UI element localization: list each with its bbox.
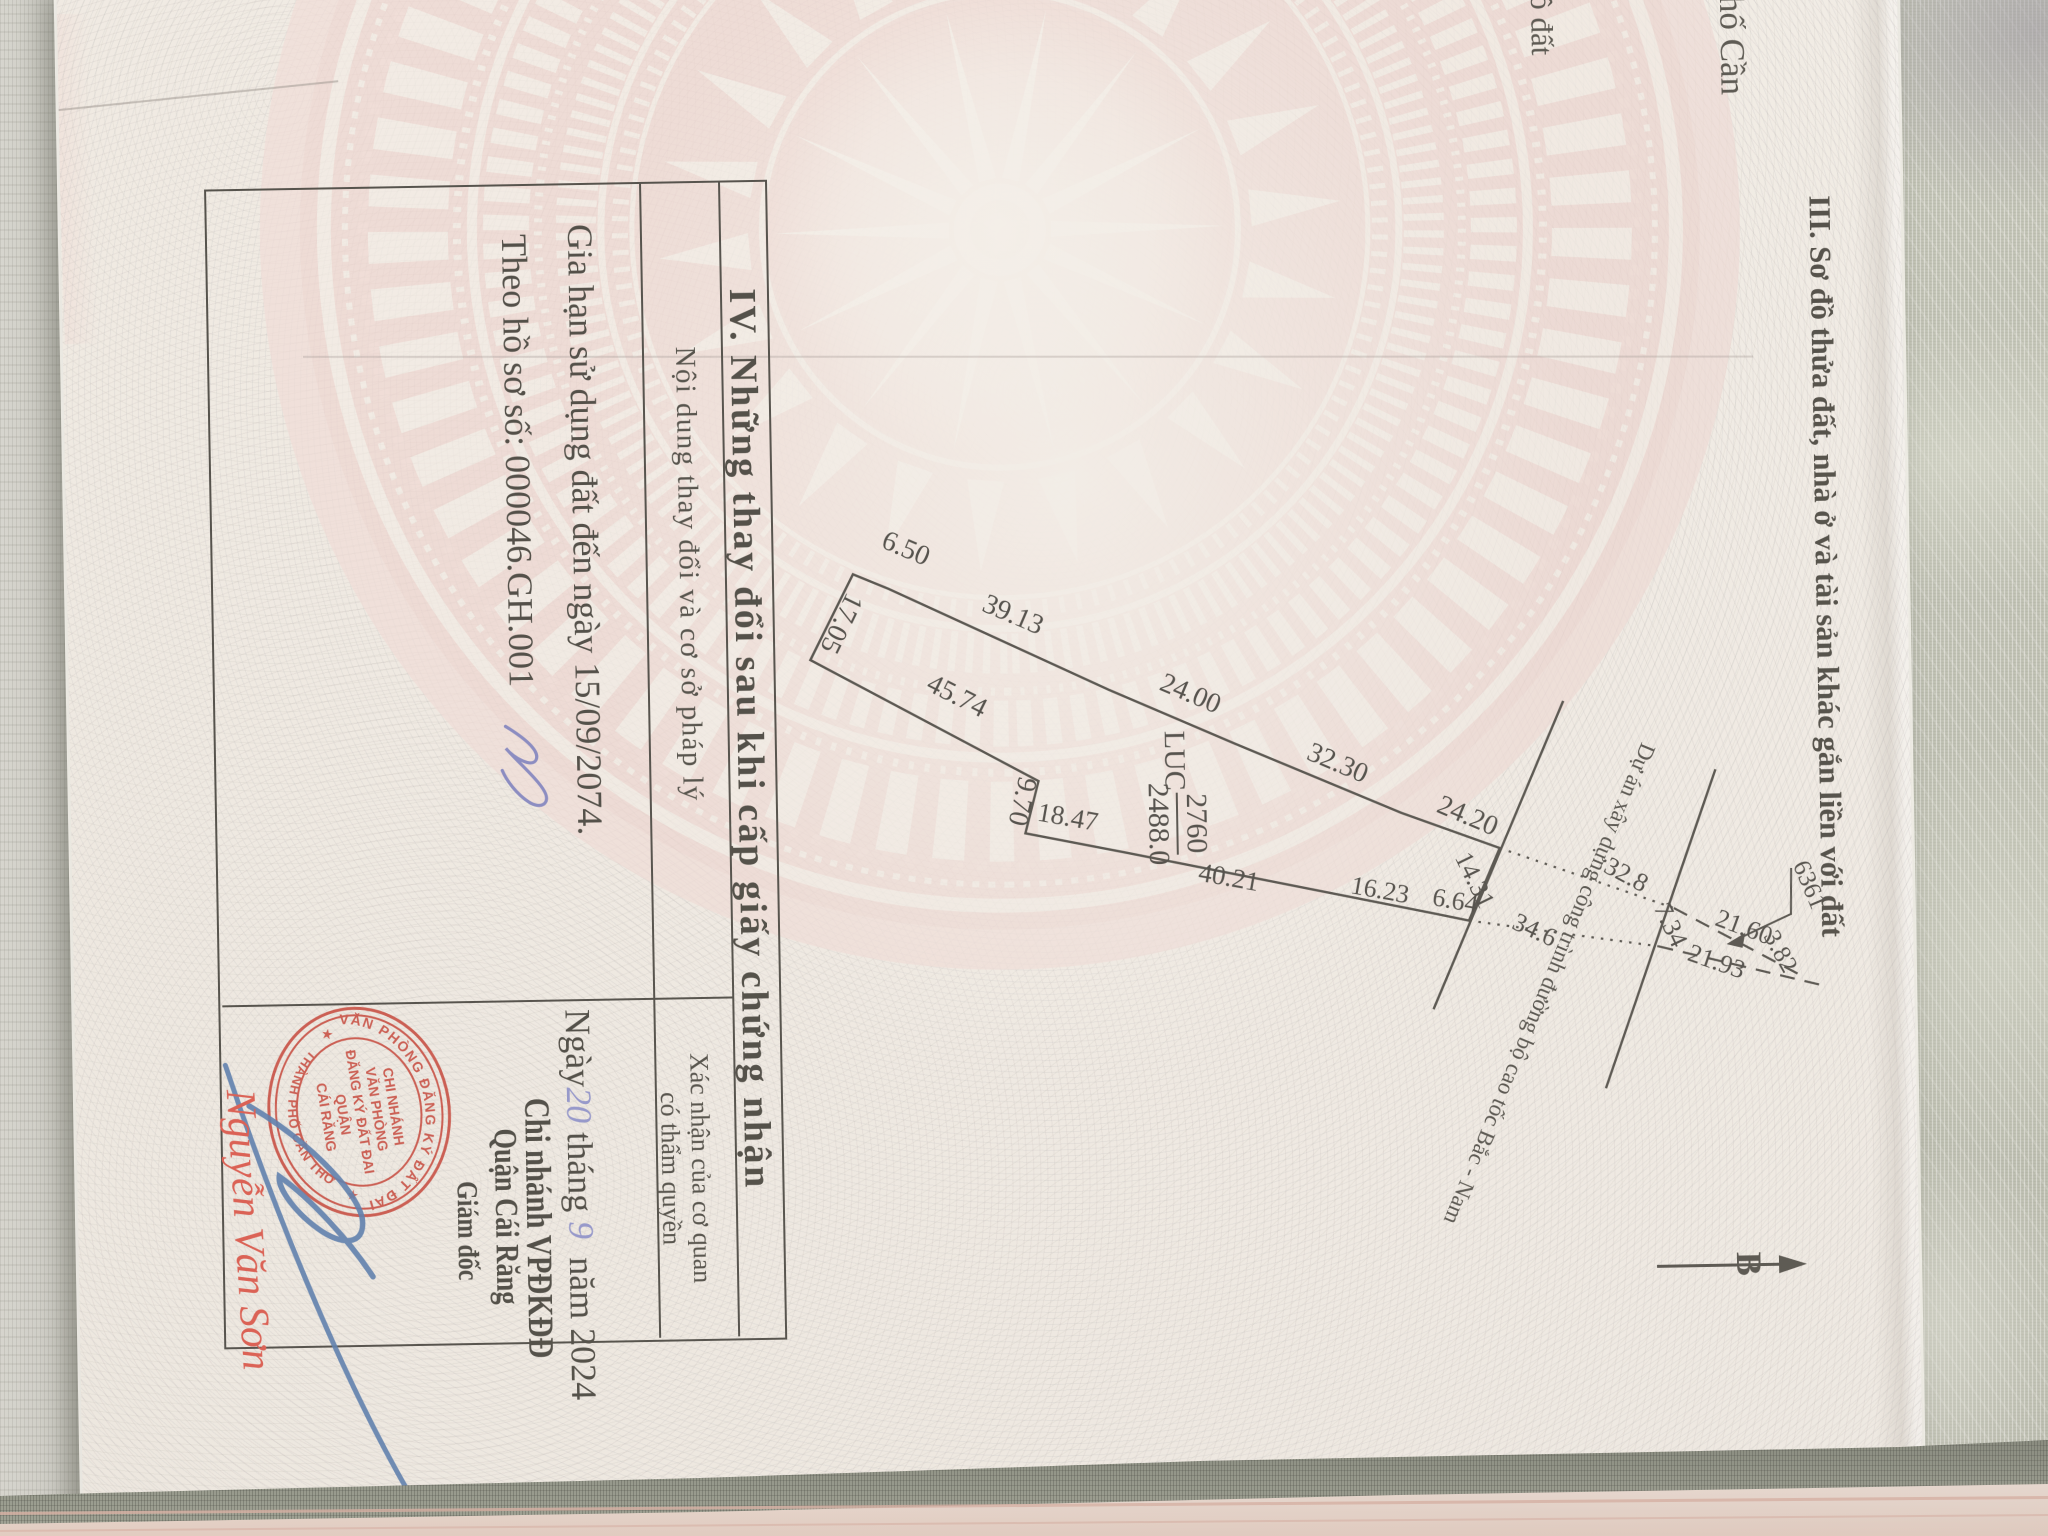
svg-text:24.00: 24.00	[1155, 667, 1225, 720]
svg-text:39.13: 39.13	[978, 588, 1048, 641]
svg-text:2488.0: 2488.0	[1142, 782, 1176, 865]
svg-text:6.50: 6.50	[877, 525, 934, 573]
svg-text:45.74: 45.74	[922, 668, 992, 724]
svg-text:18.47: 18.47	[1035, 797, 1100, 837]
svg-text:B: B	[1729, 1251, 1769, 1276]
svg-text:6361: 6361	[1787, 857, 1831, 914]
svg-text:40.21: 40.21	[1196, 857, 1261, 897]
svg-text:32.30: 32.30	[1303, 737, 1373, 790]
svg-text:★: ★	[319, 1027, 337, 1042]
svg-text:2760: 2760	[1180, 793, 1214, 854]
svg-text:24.20: 24.20	[1433, 789, 1503, 842]
svg-text:17.05: 17.05	[814, 588, 869, 658]
svg-text:16.23: 16.23	[1349, 870, 1412, 909]
